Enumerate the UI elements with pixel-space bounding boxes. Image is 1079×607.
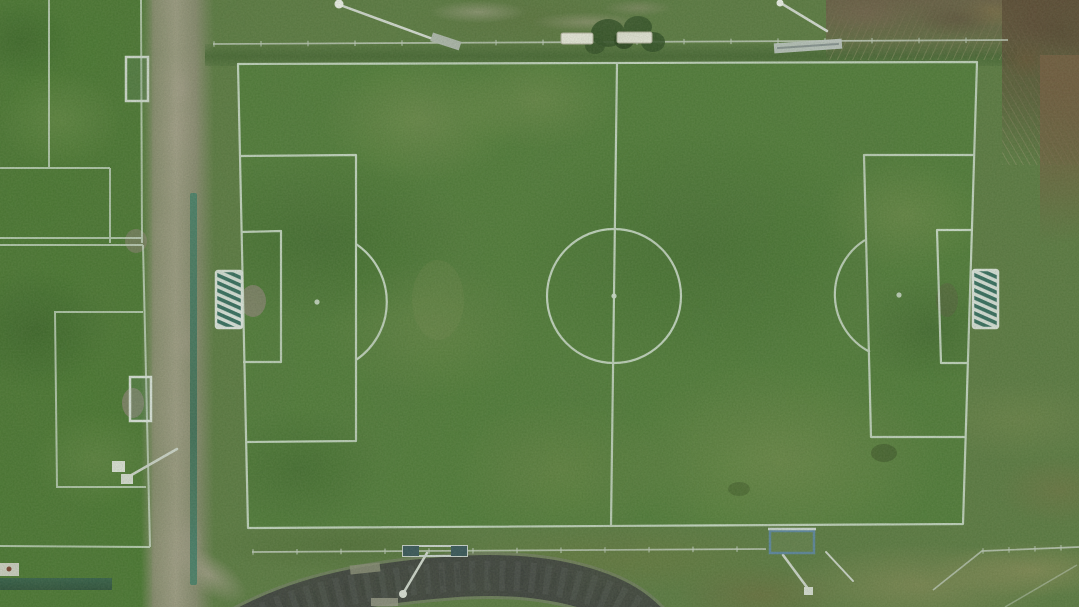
- aerial-football-pitch-photo: [0, 0, 1079, 607]
- photo-grain: [0, 0, 1079, 607]
- scene-overlay: [0, 0, 1079, 607]
